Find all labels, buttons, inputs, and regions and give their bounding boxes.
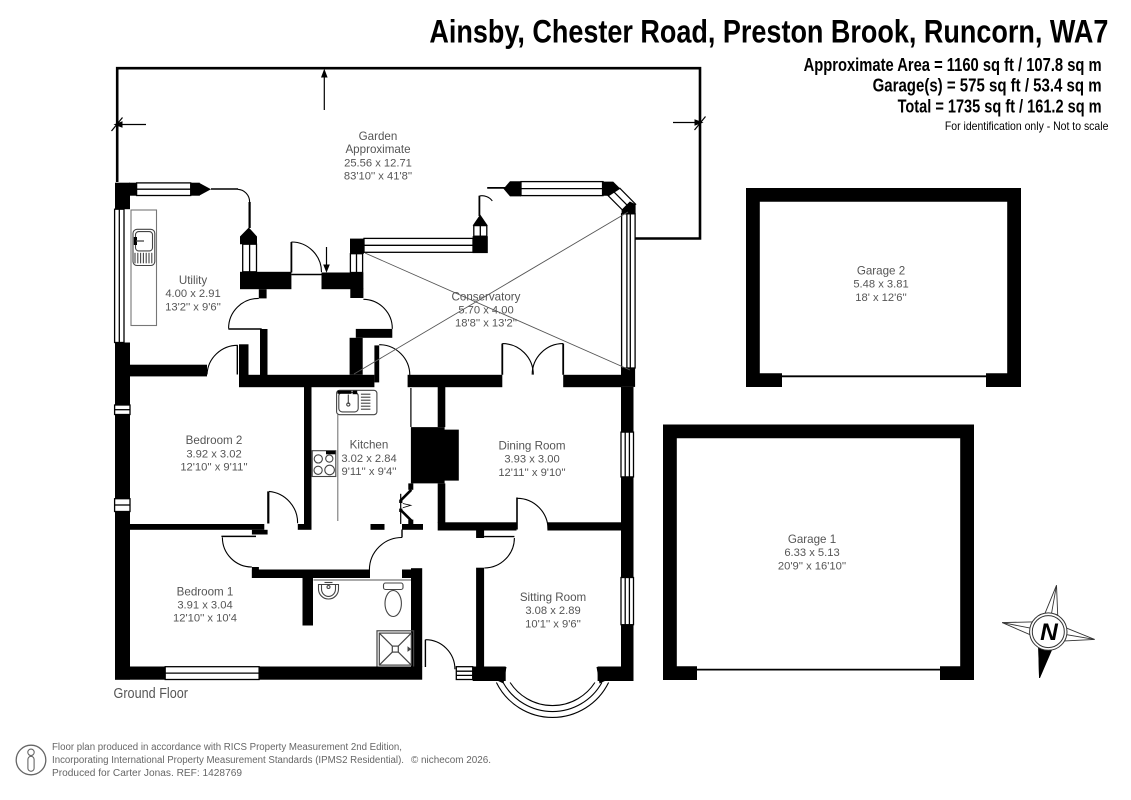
- svg-text:Garden: Garden: [359, 130, 398, 143]
- svg-text:Approximate: Approximate: [345, 143, 410, 156]
- svg-text:Conservatory: Conservatory: [452, 290, 521, 303]
- svg-text:3.02 x 2.84: 3.02 x 2.84: [341, 453, 396, 465]
- svg-text:12'11'' x 9'10'': 12'11'' x 9'10'': [498, 467, 565, 479]
- svg-text:Utility: Utility: [179, 274, 208, 287]
- svg-text:N: N: [1040, 619, 1059, 646]
- svg-text:3.91 x 3.04: 3.91 x 3.04: [177, 600, 232, 612]
- svg-text:10'1'' x 9'6'': 10'1'' x 9'6'': [525, 618, 581, 630]
- svg-text:6.33 x 5.13: 6.33 x 5.13: [784, 547, 839, 559]
- svg-text:18' x 12'6'': 18' x 12'6'': [855, 292, 906, 304]
- svg-text:13'2'' x 9'6'': 13'2'' x 9'6'': [165, 301, 221, 313]
- svg-text:83'10'' x 41'8'': 83'10'' x 41'8'': [344, 171, 412, 183]
- svg-text:© nichecom 2026.: © nichecom 2026.: [411, 755, 491, 766]
- svg-text:25.56 x 12.71: 25.56 x 12.71: [344, 157, 412, 169]
- svg-text:Bedroom 2: Bedroom 2: [186, 434, 243, 447]
- svg-text:4.00 x 2.91: 4.00 x 2.91: [165, 288, 220, 300]
- svg-text:3.93 x 3.00: 3.93 x 3.00: [504, 454, 559, 466]
- svg-text:Dining Room: Dining Room: [498, 440, 565, 453]
- svg-text:Ground Floor: Ground Floor: [114, 685, 189, 702]
- svg-text:For identification only - Not: For identification only - Not to scale: [945, 119, 1109, 133]
- svg-text:Garage 1: Garage 1: [788, 533, 836, 546]
- svg-text:Garage 2: Garage 2: [857, 265, 905, 278]
- svg-text:Kitchen: Kitchen: [350, 439, 389, 452]
- svg-text:Approximate Area = 1160 sq ft: Approximate Area = 1160 sq ft / 107.8 sq…: [804, 55, 1102, 75]
- svg-text:Bedroom 1: Bedroom 1: [177, 585, 234, 598]
- svg-text:Floor plan produced in accorda: Floor plan produced in accordance with R…: [52, 742, 402, 753]
- svg-text:5.48 x 3.81: 5.48 x 3.81: [853, 279, 908, 291]
- svg-text:12'10'' x 9'11'': 12'10'' x 9'11'': [180, 462, 247, 474]
- svg-text:Sitting Room: Sitting Room: [520, 591, 586, 604]
- svg-text:Produced for Carter Jonas. R: Produced for Carter Jonas. REF: 1428769: [52, 768, 242, 779]
- svg-text:Total = 1735 sq ft / 161.2 sq: Total = 1735 sq ft / 161.2 sq m: [898, 96, 1102, 116]
- svg-text:20'9'' x 16'10'': 20'9'' x 16'10'': [778, 560, 846, 572]
- svg-text:Ainsby, Chester Road, Preston: Ainsby, Chester Road, Preston Brook, Run…: [429, 14, 1108, 50]
- svg-text:9'11'' x 9'4'': 9'11'' x 9'4'': [342, 466, 397, 478]
- svg-text:Garage(s) = 575 sq ft / 53.4 s: Garage(s) = 575 sq ft / 53.4 sq m: [873, 76, 1102, 96]
- svg-text:12'10'' x 10'4: 12'10'' x 10'4: [173, 613, 237, 625]
- svg-text:18'8'' x 13'2'': 18'8'' x 13'2'': [455, 318, 517, 330]
- svg-text:5.70 x 4.00: 5.70 x 4.00: [458, 305, 513, 317]
- svg-text:3.92 x 3.02: 3.92 x 3.02: [186, 448, 241, 460]
- svg-text:3.08 x 2.89: 3.08 x 2.89: [525, 605, 580, 617]
- svg-text:Incorporating International Pr: Incorporating International Property Mea…: [52, 755, 404, 766]
